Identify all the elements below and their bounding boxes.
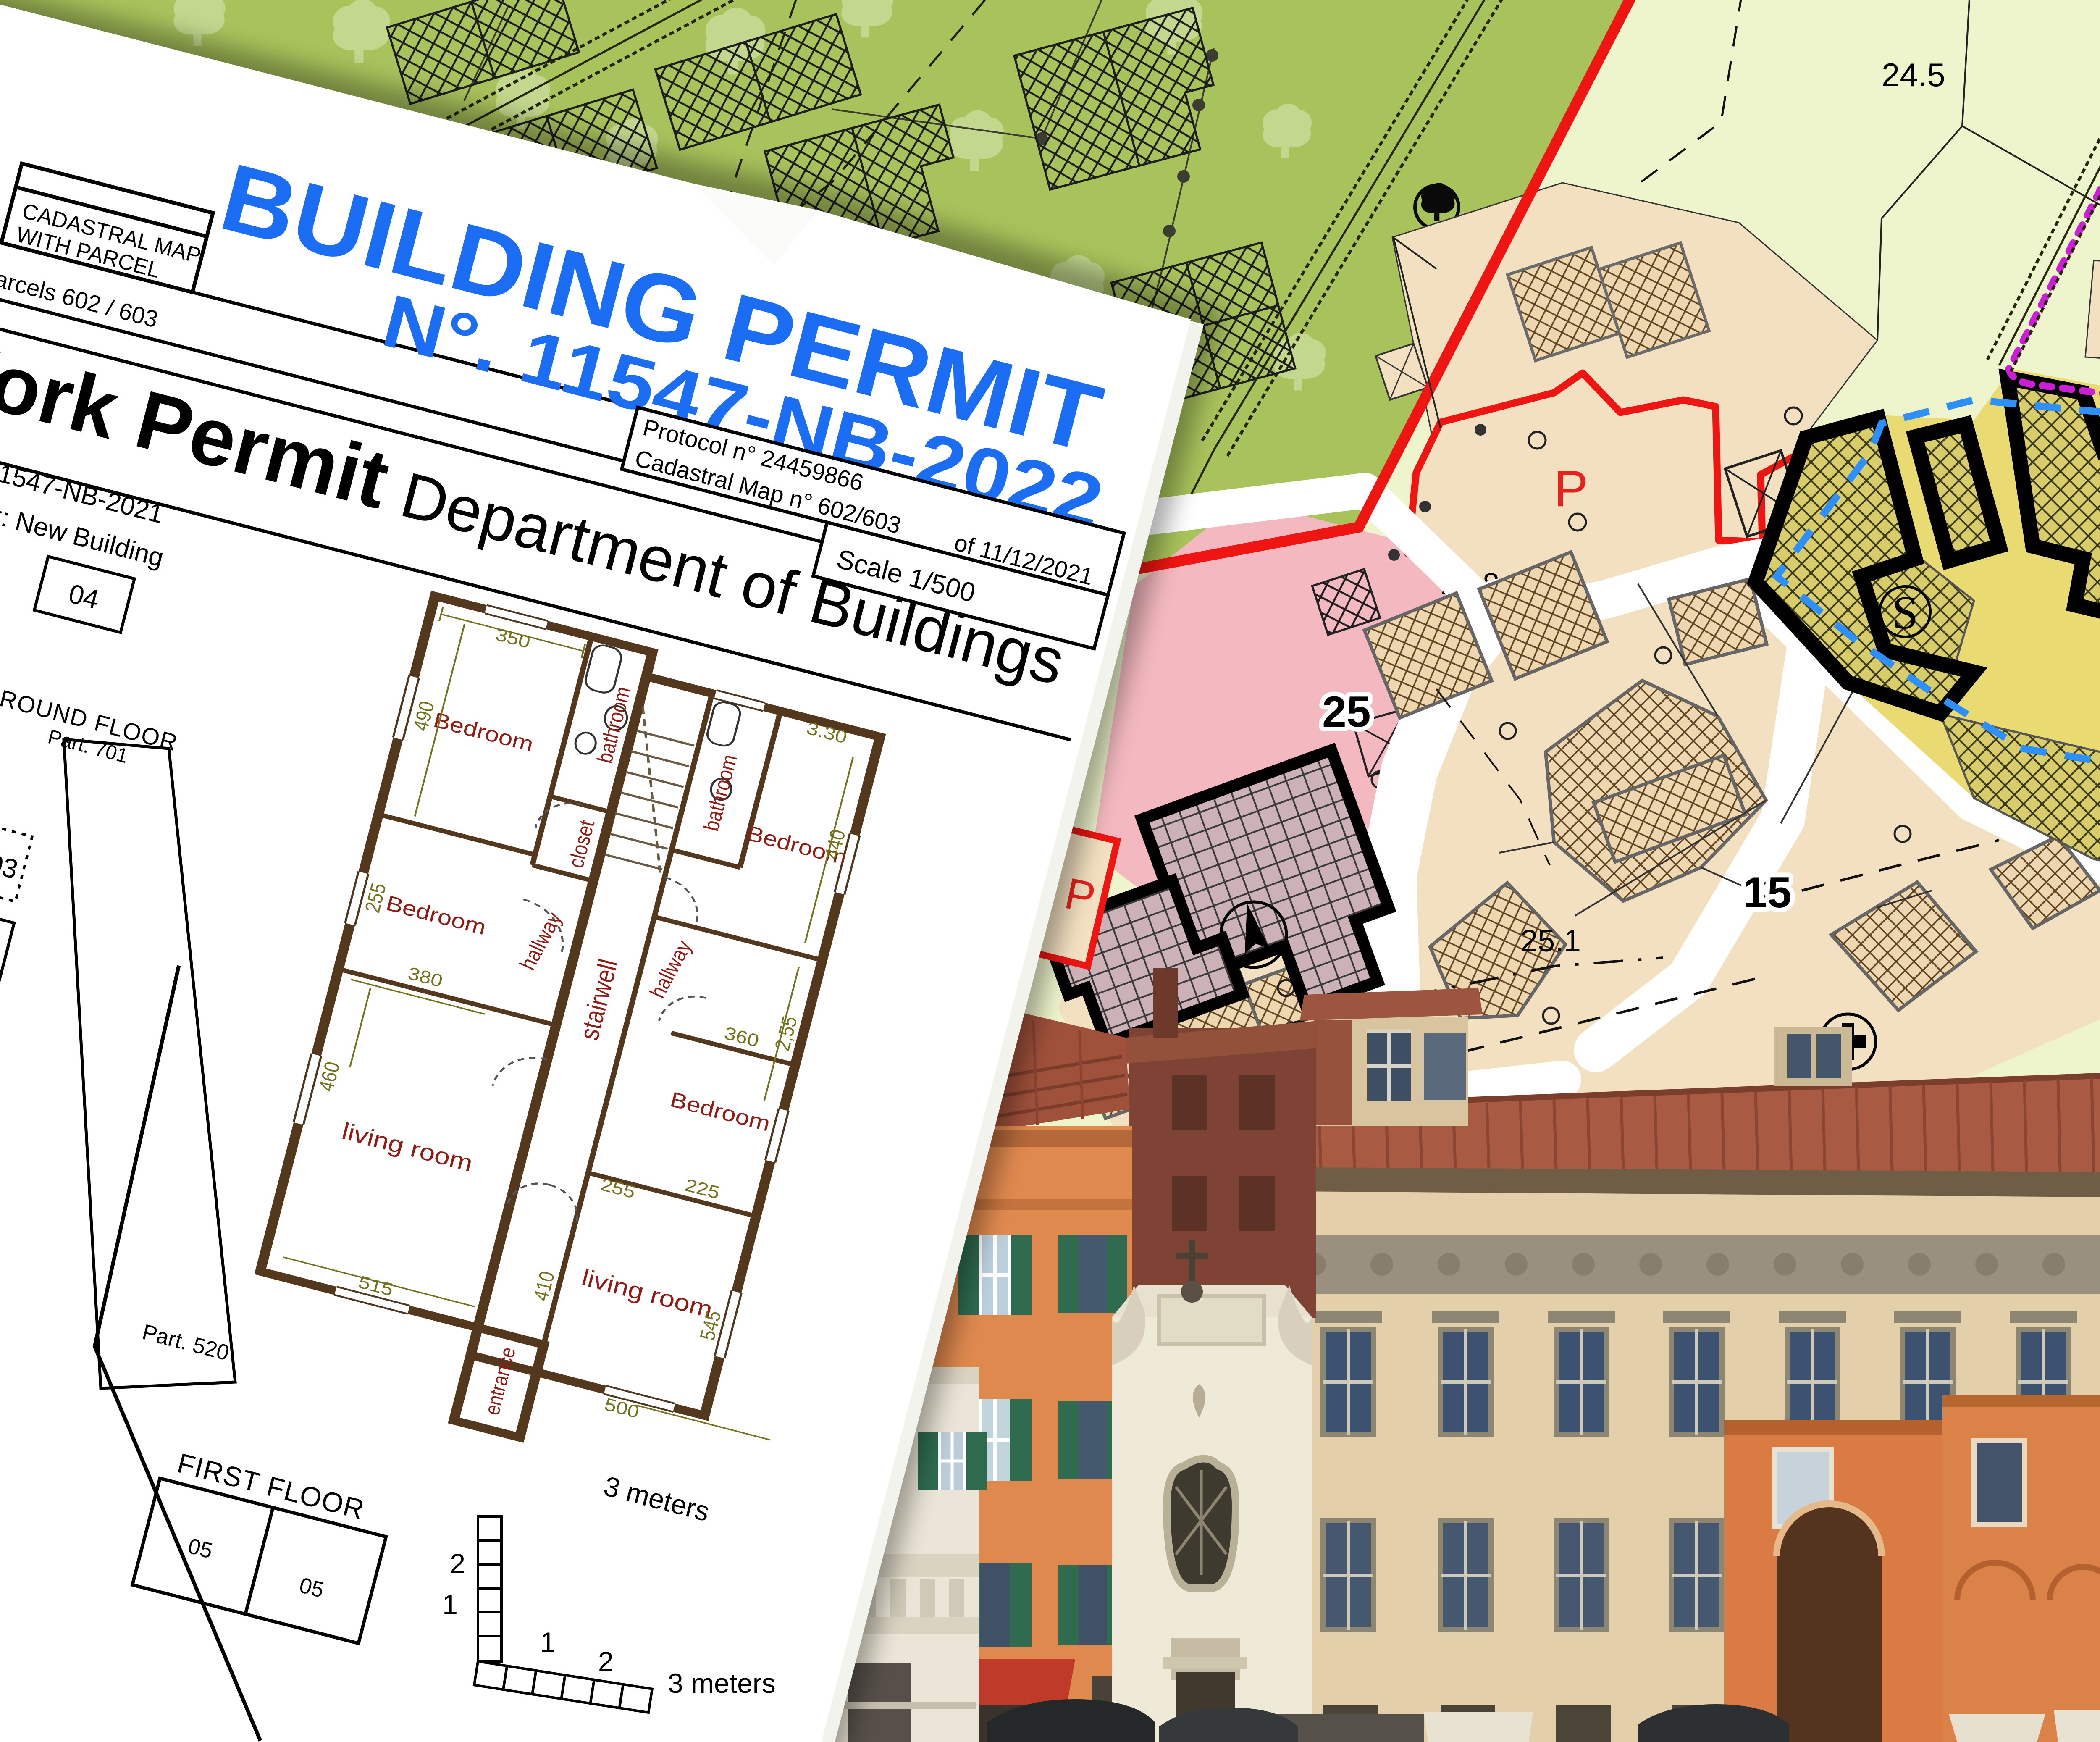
svg-text:1: 1 xyxy=(540,1626,556,1658)
svg-text:25.1: 25.1 xyxy=(1520,923,1581,958)
svg-text:15: 15 xyxy=(1743,868,1792,917)
svg-text:1: 1 xyxy=(442,1589,458,1620)
svg-text:25: 25 xyxy=(1322,688,1371,736)
svg-text:P: P xyxy=(1554,460,1588,517)
svg-text:24.5: 24.5 xyxy=(1882,56,1945,93)
svg-text:2: 2 xyxy=(450,1548,465,1579)
svg-text:2: 2 xyxy=(598,1646,614,1677)
svg-text:S: S xyxy=(1892,587,1918,639)
svg-text:3 meters: 3 meters xyxy=(668,1668,776,1699)
